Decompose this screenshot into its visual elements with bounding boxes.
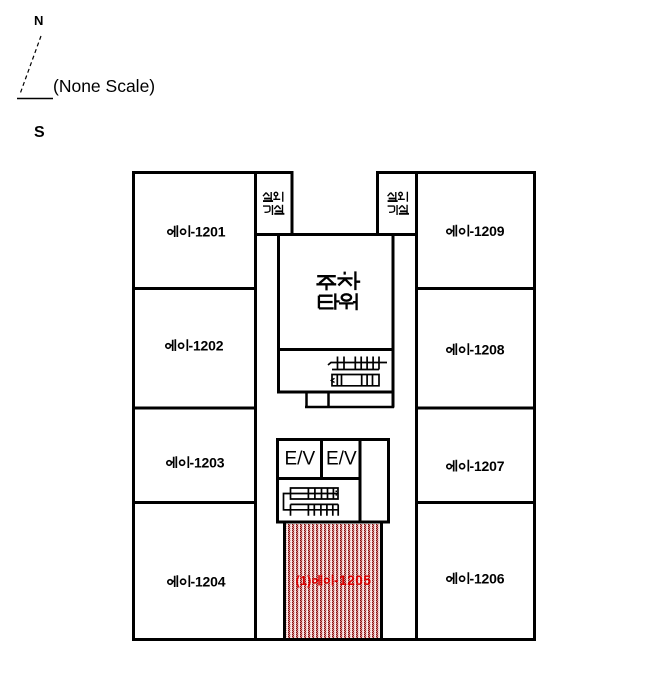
svg-text:-1209: -1209 [470,223,505,239]
svg-text:-1205: -1205 [334,573,372,588]
svg-text:-1207: -1207 [470,458,505,474]
svg-text:E/V: E/V [285,449,316,470]
svg-text:E/V: E/V [326,449,357,470]
svg-text:-1204: -1204 [191,573,226,589]
svg-text:-1206: -1206 [470,570,505,586]
svg-text:S: S [34,124,45,141]
svg-text:(1): (1) [296,573,312,588]
svg-text:(None Scale): (None Scale) [53,76,155,96]
svg-text:-1201: -1201 [191,223,226,239]
svg-text:N: N [34,13,43,28]
svg-text:-1202: -1202 [189,337,224,353]
svg-text:-1208: -1208 [470,341,505,357]
svg-text:-1203: -1203 [190,454,225,470]
